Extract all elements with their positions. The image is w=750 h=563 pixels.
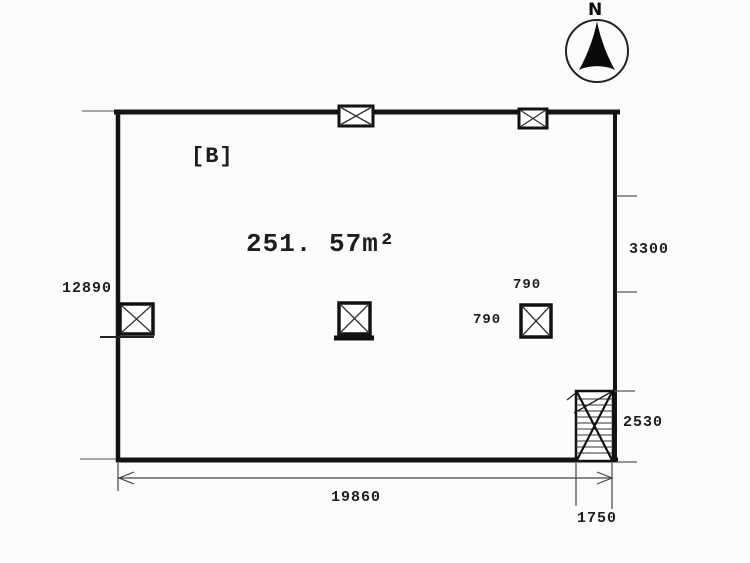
floor-plan-sheet: N [B] 251. 57m² 12890 3300 790 790 2530 … [0, 0, 750, 563]
north-label: N [588, 2, 602, 19]
area-label: 251. 57m² [246, 231, 395, 257]
north-compass [566, 20, 628, 82]
dim-right-upper: 3300 [629, 242, 669, 257]
dim-stair-width: 1750 [577, 511, 617, 526]
dim-stair-height: 2530 [623, 415, 663, 430]
column-box-left [120, 304, 153, 334]
column-box-center [334, 303, 374, 338]
vent-box-top-left [339, 106, 373, 126]
building-outline [114, 110, 620, 462]
dim-column-top: 790 [513, 278, 541, 292]
compass-needle [579, 21, 615, 70]
column-box-right [521, 305, 551, 337]
dim-bottom-width: 19860 [331, 490, 381, 505]
staircase [567, 391, 613, 461]
room-label: [B] [191, 146, 234, 168]
dim-column-left: 790 [473, 313, 501, 327]
dim-left-side: 12890 [62, 281, 112, 296]
vent-box-top-right [519, 109, 547, 128]
floor-plan-drawing [0, 0, 750, 563]
